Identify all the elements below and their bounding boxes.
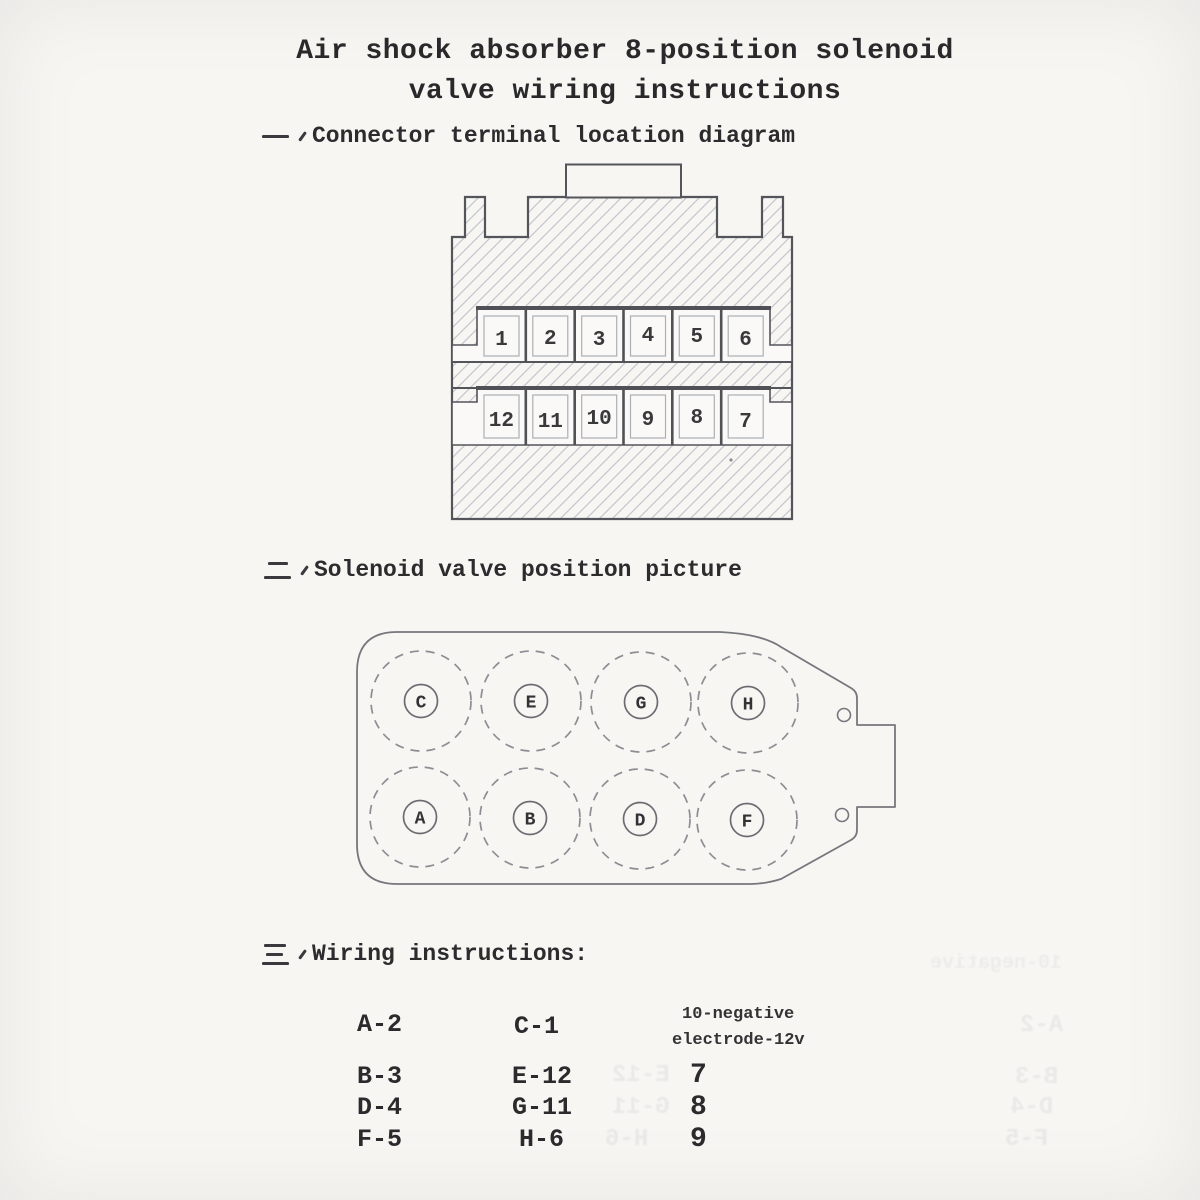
- valve-position-letter: G: [636, 695, 647, 715]
- wiring-note-line2: electrode-12v: [672, 1031, 805, 1050]
- valve-position-letter: D: [635, 812, 646, 832]
- page-title-line1: Air shock absorber 8-position solenoid: [296, 36, 954, 67]
- wiring-pair: H-6: [519, 1125, 564, 1154]
- wiring-terminal-number: 8: [690, 1092, 707, 1123]
- mounting-hole: [836, 809, 849, 822]
- section2-heading-text: Solenoid valve position picture: [314, 557, 742, 583]
- section3-marker-san: [262, 940, 312, 968]
- valve-position-letter: C: [416, 694, 427, 714]
- ghost-bleedthrough-text: B-3: [1015, 1064, 1058, 1091]
- section2-heading: Solenoid valve position picture: [264, 556, 742, 584]
- instruction-sheet: Air shock absorber 8-position solenoid v…: [0, 0, 1200, 1200]
- solenoid-dashed-circles: [370, 651, 798, 870]
- ghost-bleedthrough-text: E-12: [612, 1062, 670, 1089]
- terminal-number: 10: [586, 408, 611, 431]
- ghost-bleedthrough-text: G-11: [612, 1094, 670, 1121]
- scan-speckle: [729, 458, 732, 461]
- connector-top-tab: [566, 165, 681, 198]
- connector-terminal-diagram: 1 2 3 4 5 6 12 11 10 9 8 7: [446, 158, 798, 526]
- ghost-bleedthrough-text: H-6: [605, 1126, 648, 1153]
- page-title-line2: valve wiring instructions: [409, 76, 842, 107]
- solenoid-letter-circles: [404, 685, 765, 837]
- section1-marker-yi: [262, 122, 312, 150]
- terminal-number: 9: [642, 409, 655, 432]
- terminal-number: 6: [739, 329, 752, 352]
- wiring-pair: G-11: [512, 1093, 572, 1122]
- section3-heading: Wiring instructions:: [262, 940, 588, 968]
- terminal-number: 5: [690, 326, 703, 349]
- mounting-hole: [838, 709, 851, 722]
- wiring-pair: D-4: [357, 1093, 402, 1122]
- ghost-bleedthrough-text: A-2: [1020, 1012, 1063, 1039]
- wiring-terminal-number: 9: [690, 1124, 707, 1155]
- terminal-number: 1: [495, 329, 508, 352]
- section2-marker-er: [264, 556, 314, 584]
- wiring-terminal-number: 7: [690, 1060, 707, 1091]
- terminal-number: 2: [544, 328, 557, 351]
- ghost-bleedthrough-text: D-4: [1010, 1094, 1053, 1121]
- section1-heading-text: Connector terminal location diagram: [312, 123, 795, 149]
- wiring-pair: A-2: [357, 1010, 402, 1039]
- wiring-pair: E-12: [512, 1062, 572, 1091]
- ghost-bleedthrough-text: 10-negative: [930, 952, 1062, 975]
- valve-position-letter: E: [526, 694, 537, 714]
- terminal-number: 4: [642, 325, 655, 348]
- valve-position-letter: B: [525, 811, 536, 831]
- terminal-number: 3: [593, 329, 606, 352]
- valve-position-letter: H: [743, 696, 754, 716]
- terminal-number: 12: [489, 410, 514, 433]
- valve-position-letter: A: [415, 810, 426, 830]
- wiring-note-line1: 10-negative: [682, 1005, 794, 1024]
- section1-heading: Connector terminal location diagram: [262, 122, 795, 150]
- terminal-number: 11: [538, 411, 563, 434]
- valve-position-letter: F: [742, 813, 753, 833]
- terminal-number: 7: [739, 411, 752, 434]
- ghost-bleedthrough-text: F-5: [1005, 1126, 1048, 1153]
- terminal-number: 8: [690, 407, 703, 430]
- wiring-pair: F-5: [357, 1125, 402, 1154]
- section3-heading-text: Wiring instructions:: [312, 941, 588, 967]
- wiring-pair: C-1: [514, 1012, 559, 1041]
- solenoid-valve-diagram: C E G H A B D F: [348, 622, 904, 894]
- valve-body-outline: [357, 632, 895, 884]
- wiring-pair: B-3: [357, 1062, 402, 1091]
